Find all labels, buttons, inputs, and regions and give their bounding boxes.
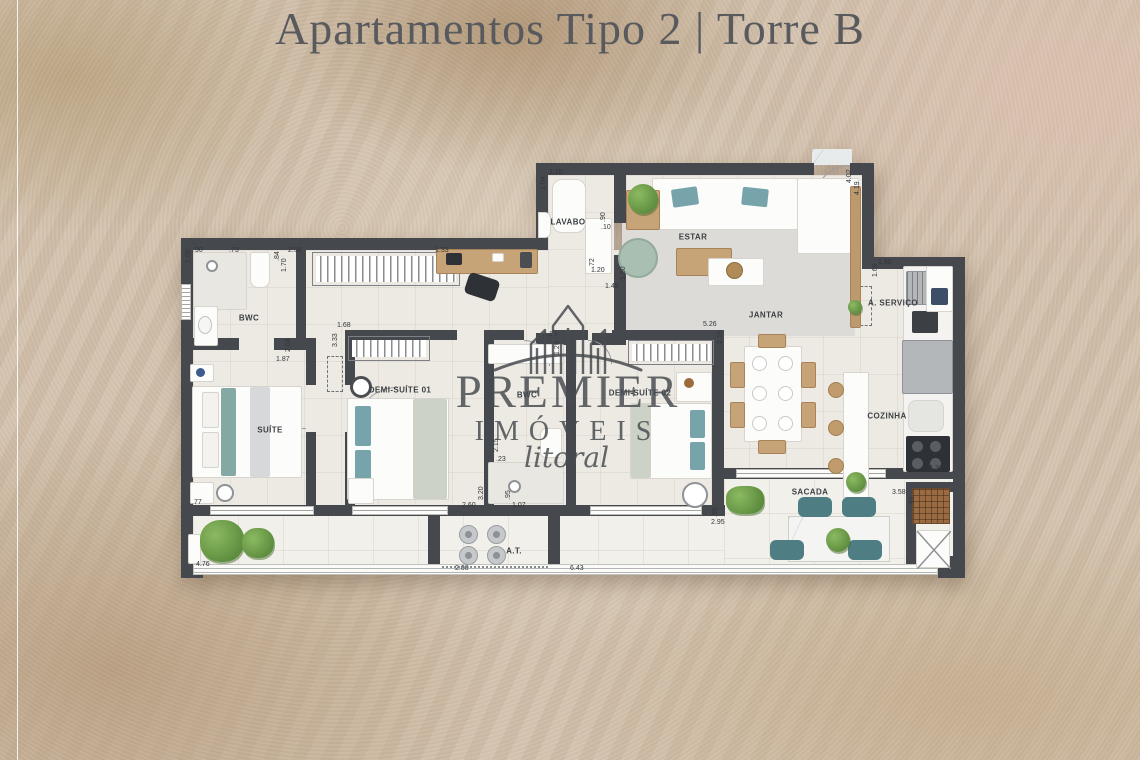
window bbox=[590, 506, 702, 515]
decor bbox=[196, 368, 205, 377]
advertisement-canvas: Apartamentos Tipo 2 | Torre B bbox=[0, 0, 1140, 760]
room-label-estar: ESTAR bbox=[679, 233, 708, 242]
wall bbox=[953, 257, 965, 578]
measurement-label: 1.04 bbox=[540, 176, 547, 190]
room-label-demi1: DEMI-SUÍTE 01 bbox=[369, 386, 432, 395]
plant bbox=[242, 528, 274, 558]
dining-chair bbox=[758, 440, 786, 454]
outdoor-chair bbox=[842, 497, 876, 517]
outdoor-chair bbox=[798, 497, 832, 517]
wall bbox=[862, 163, 874, 269]
desk-papers bbox=[492, 253, 504, 262]
room-label-bwc-social: BWC bbox=[517, 391, 537, 400]
measurement-label: 2.00 bbox=[455, 565, 469, 572]
dresser bbox=[676, 372, 712, 402]
place-setting bbox=[778, 356, 793, 371]
ac-projection bbox=[327, 356, 343, 392]
grill bbox=[912, 488, 950, 524]
measurement-label: .95 bbox=[505, 490, 512, 500]
ac-condenser bbox=[459, 525, 478, 544]
room-label-cozinha: COZINHA bbox=[867, 412, 906, 421]
fridge bbox=[902, 340, 953, 394]
wall bbox=[548, 505, 560, 567]
measurement-label: .10 bbox=[601, 224, 611, 231]
plant bbox=[200, 520, 244, 562]
pillow bbox=[202, 392, 219, 428]
place-setting bbox=[752, 416, 767, 431]
measurement-label: 1.69 bbox=[872, 263, 879, 277]
burner bbox=[912, 441, 923, 452]
wall bbox=[612, 330, 720, 340]
measurement-label: 2.58 bbox=[288, 247, 302, 254]
entrance-hall-marble bbox=[812, 149, 852, 165]
dining-chair bbox=[730, 362, 745, 388]
plant bbox=[848, 300, 862, 314]
burner bbox=[912, 458, 923, 469]
sofa-pillow bbox=[671, 186, 699, 207]
wall bbox=[296, 250, 306, 342]
measurement-label: .90 bbox=[600, 212, 607, 222]
bwc-basin bbox=[198, 316, 212, 334]
measurement-label: 2.95 bbox=[711, 519, 725, 526]
measurement-label: 4.19 bbox=[854, 181, 861, 195]
measurement-label: 1.20 bbox=[554, 341, 561, 355]
measurement-label: 1.10 bbox=[549, 169, 563, 176]
bwc2-vanity bbox=[488, 344, 564, 364]
shaft-x-icon bbox=[917, 531, 951, 569]
room-label-lavabo: LAVABO bbox=[551, 218, 586, 227]
bwc2-shower bbox=[488, 462, 564, 504]
pillow bbox=[690, 442, 705, 470]
measurement-label: 5.26 bbox=[703, 321, 717, 328]
bed-throw bbox=[221, 388, 236, 476]
planter bbox=[726, 486, 764, 514]
room-label-at: A.T. bbox=[506, 547, 522, 556]
measurement-label: 2.60 bbox=[462, 502, 476, 509]
measurement-label: 4.33 bbox=[929, 465, 943, 472]
measurement-label: .84 bbox=[274, 251, 281, 261]
sofa-pillow bbox=[741, 187, 769, 208]
measurement-label: 2.04 bbox=[285, 338, 292, 352]
stool bbox=[828, 420, 844, 436]
measurement-label: .23 bbox=[496, 456, 506, 463]
room-label-demi2: DEMI-SUÍTE 02 bbox=[609, 389, 672, 398]
measurement-label: 3.33 bbox=[332, 333, 339, 347]
place-setting bbox=[778, 416, 793, 431]
measurement-label: .77 bbox=[192, 499, 202, 506]
measurement-label: 2.15 bbox=[717, 330, 724, 344]
decor bbox=[684, 378, 694, 388]
pillow bbox=[355, 406, 371, 446]
balcony-railing bbox=[193, 564, 938, 575]
plant bbox=[826, 528, 850, 552]
round-rug bbox=[682, 482, 708, 508]
shower-head-icon bbox=[206, 260, 218, 272]
measurement-label: 4.02 bbox=[846, 169, 853, 183]
measurement-label: 3.20 bbox=[478, 486, 485, 500]
closet bbox=[348, 336, 430, 361]
dining-chair bbox=[730, 402, 745, 428]
measurement-label: 1.50 bbox=[620, 266, 627, 280]
wall bbox=[566, 340, 576, 510]
measurement-label: 1.10 bbox=[543, 331, 557, 338]
measurement-label: 4.76 bbox=[196, 561, 210, 568]
closet bbox=[628, 340, 714, 365]
room-label-sacada: SACADA bbox=[792, 488, 829, 497]
shower-area bbox=[193, 252, 247, 310]
measurement-label: 1.48 bbox=[605, 283, 619, 290]
measurement-label: 1.33 bbox=[435, 247, 449, 254]
plant bbox=[846, 472, 866, 492]
window bbox=[352, 506, 448, 515]
outdoor-chair bbox=[770, 540, 804, 560]
ac-condenser bbox=[459, 546, 478, 565]
place-setting bbox=[778, 386, 793, 401]
wall bbox=[614, 163, 626, 223]
wall bbox=[306, 432, 316, 510]
dining-chair bbox=[758, 334, 786, 348]
burner bbox=[930, 441, 941, 452]
ac-condenser bbox=[487, 546, 506, 565]
place-setting bbox=[752, 386, 767, 401]
ac-condenser bbox=[487, 525, 506, 544]
measurement-label: 2.15 bbox=[493, 438, 500, 452]
measurement-label: 1.87 bbox=[276, 356, 290, 363]
stool bbox=[828, 382, 844, 398]
measurement-label: .91 bbox=[909, 496, 916, 506]
window bbox=[210, 506, 314, 515]
pillow bbox=[690, 410, 705, 438]
toilet bbox=[250, 252, 270, 288]
wall bbox=[614, 163, 814, 175]
dining-chair bbox=[801, 402, 816, 428]
measurement-label: .90 bbox=[193, 247, 203, 254]
room-label-bwc-suite: BWC bbox=[239, 314, 259, 323]
bed-blanket bbox=[631, 404, 651, 478]
floor-lamp bbox=[216, 484, 234, 502]
washer-door bbox=[931, 288, 948, 305]
floor-plan: BWC SUÍTE LAVABO ESTAR JANTAR A. SERVIÇO… bbox=[0, 0, 1140, 760]
lavabo-toilet bbox=[538, 212, 551, 238]
measurement-label: 1.70 bbox=[281, 258, 288, 272]
kitchen-sink bbox=[908, 400, 944, 432]
measurement-label: 1.00 bbox=[185, 249, 192, 263]
stool bbox=[828, 458, 844, 474]
wall bbox=[306, 338, 316, 385]
decor-tray bbox=[726, 262, 743, 279]
outdoor-chair bbox=[848, 540, 882, 560]
measurement-label: 6.43 bbox=[570, 565, 584, 572]
wall bbox=[484, 330, 524, 340]
room-label-servico: A. SERVIÇO bbox=[868, 299, 918, 308]
measurement-label: 3.58 bbox=[892, 489, 906, 496]
microwave bbox=[912, 311, 938, 333]
measurement-label: 1.20 bbox=[591, 267, 605, 274]
nightstand bbox=[348, 478, 374, 504]
measurement-label: .73 bbox=[229, 247, 239, 254]
measurement-label: 1.68 bbox=[337, 322, 351, 329]
wall bbox=[552, 330, 588, 340]
desk-phone bbox=[520, 252, 532, 268]
measurement-label: 1.50 bbox=[878, 259, 892, 266]
plant bbox=[628, 184, 658, 214]
window bbox=[181, 284, 191, 320]
bed-blanket bbox=[413, 399, 447, 499]
measurement-label: .95 bbox=[712, 507, 719, 517]
room-label-suite: SUÍTE bbox=[257, 426, 283, 435]
place-setting bbox=[752, 356, 767, 371]
bwc2-toilet bbox=[540, 428, 562, 458]
measurement-label: 1.07 bbox=[512, 502, 526, 509]
shaft bbox=[916, 530, 950, 568]
laptop bbox=[446, 253, 462, 265]
dining-chair bbox=[801, 362, 816, 388]
pillow bbox=[202, 432, 219, 468]
room-label-jantar: JANTAR bbox=[749, 311, 783, 320]
